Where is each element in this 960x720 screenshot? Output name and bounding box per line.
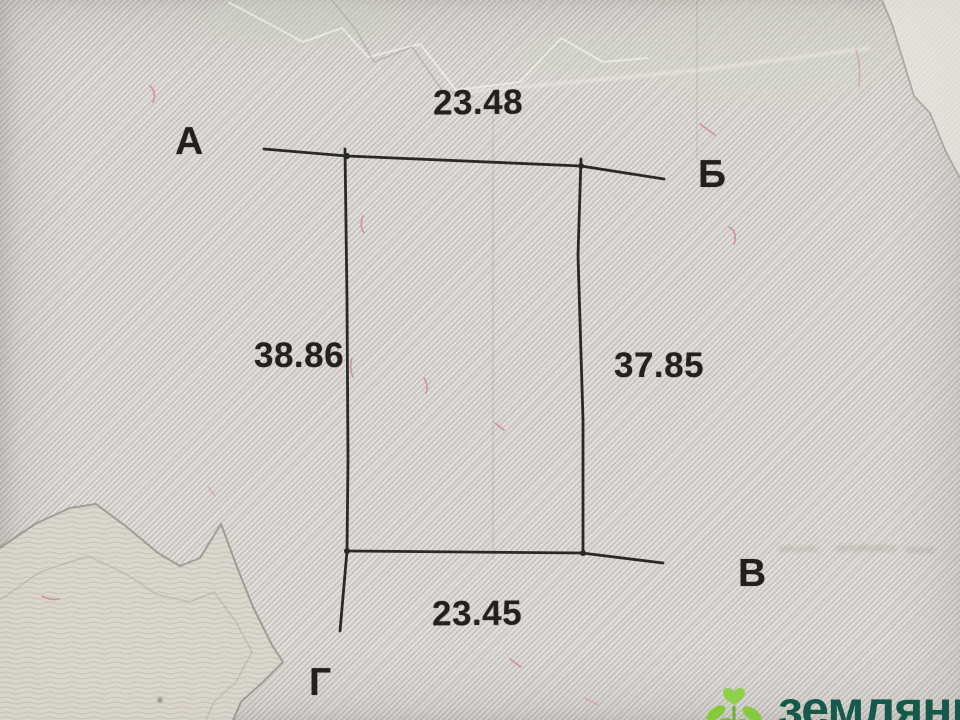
parcel-side-right bbox=[578, 159, 583, 553]
corner-label-b: Б bbox=[698, 155, 726, 194]
paper-creases bbox=[493, 0, 697, 560]
corner-ticks bbox=[344, 153, 586, 556]
parcel-side-left bbox=[340, 149, 348, 631]
measurement-left: 38.86 bbox=[254, 338, 344, 373]
faint-smudges bbox=[158, 545, 935, 702]
parcel-side-top bbox=[264, 149, 664, 179]
scanned-parcel-sketch: А Б В Г 23.48 38.86 37.85 23.45 земляни bbox=[0, 0, 960, 720]
corner-label-g: Г bbox=[309, 663, 331, 702]
parcel-outline bbox=[264, 149, 664, 631]
watermark-logo: земляни bbox=[698, 681, 960, 720]
measurement-bottom: 23.45 bbox=[432, 596, 522, 632]
measurement-top: 23.48 bbox=[433, 85, 523, 121]
measurement-right: 37.85 bbox=[614, 348, 704, 383]
wavy-texture-zone bbox=[0, 504, 283, 720]
parcel-side-bottom bbox=[347, 551, 663, 563]
corner-label-a: А bbox=[175, 122, 204, 161]
watermark-text: земляни bbox=[778, 681, 960, 720]
corner-label-v: В bbox=[738, 554, 766, 593]
sprout-icon bbox=[698, 686, 770, 720]
